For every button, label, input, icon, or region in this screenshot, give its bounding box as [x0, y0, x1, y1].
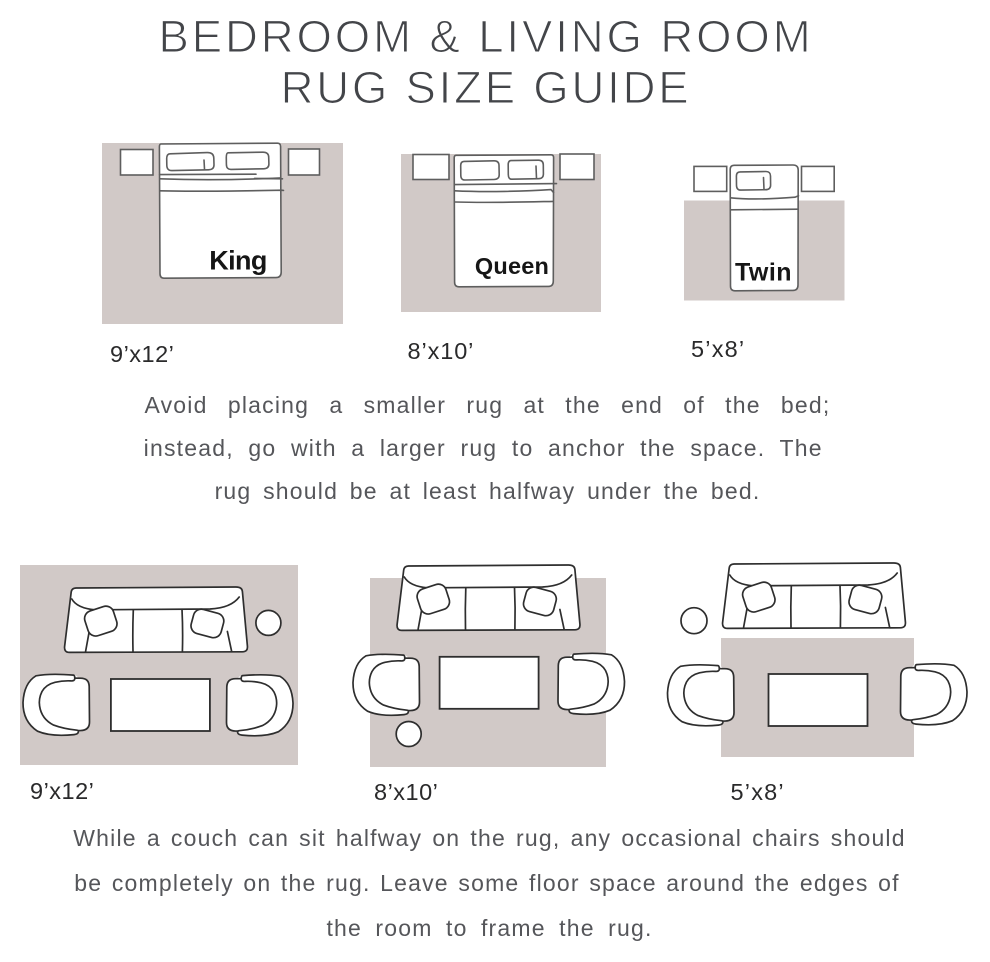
svg-text:Twin: Twin [735, 259, 792, 287]
svg-text:King: King [209, 246, 267, 276]
svg-text:Queen: Queen [475, 253, 549, 279]
